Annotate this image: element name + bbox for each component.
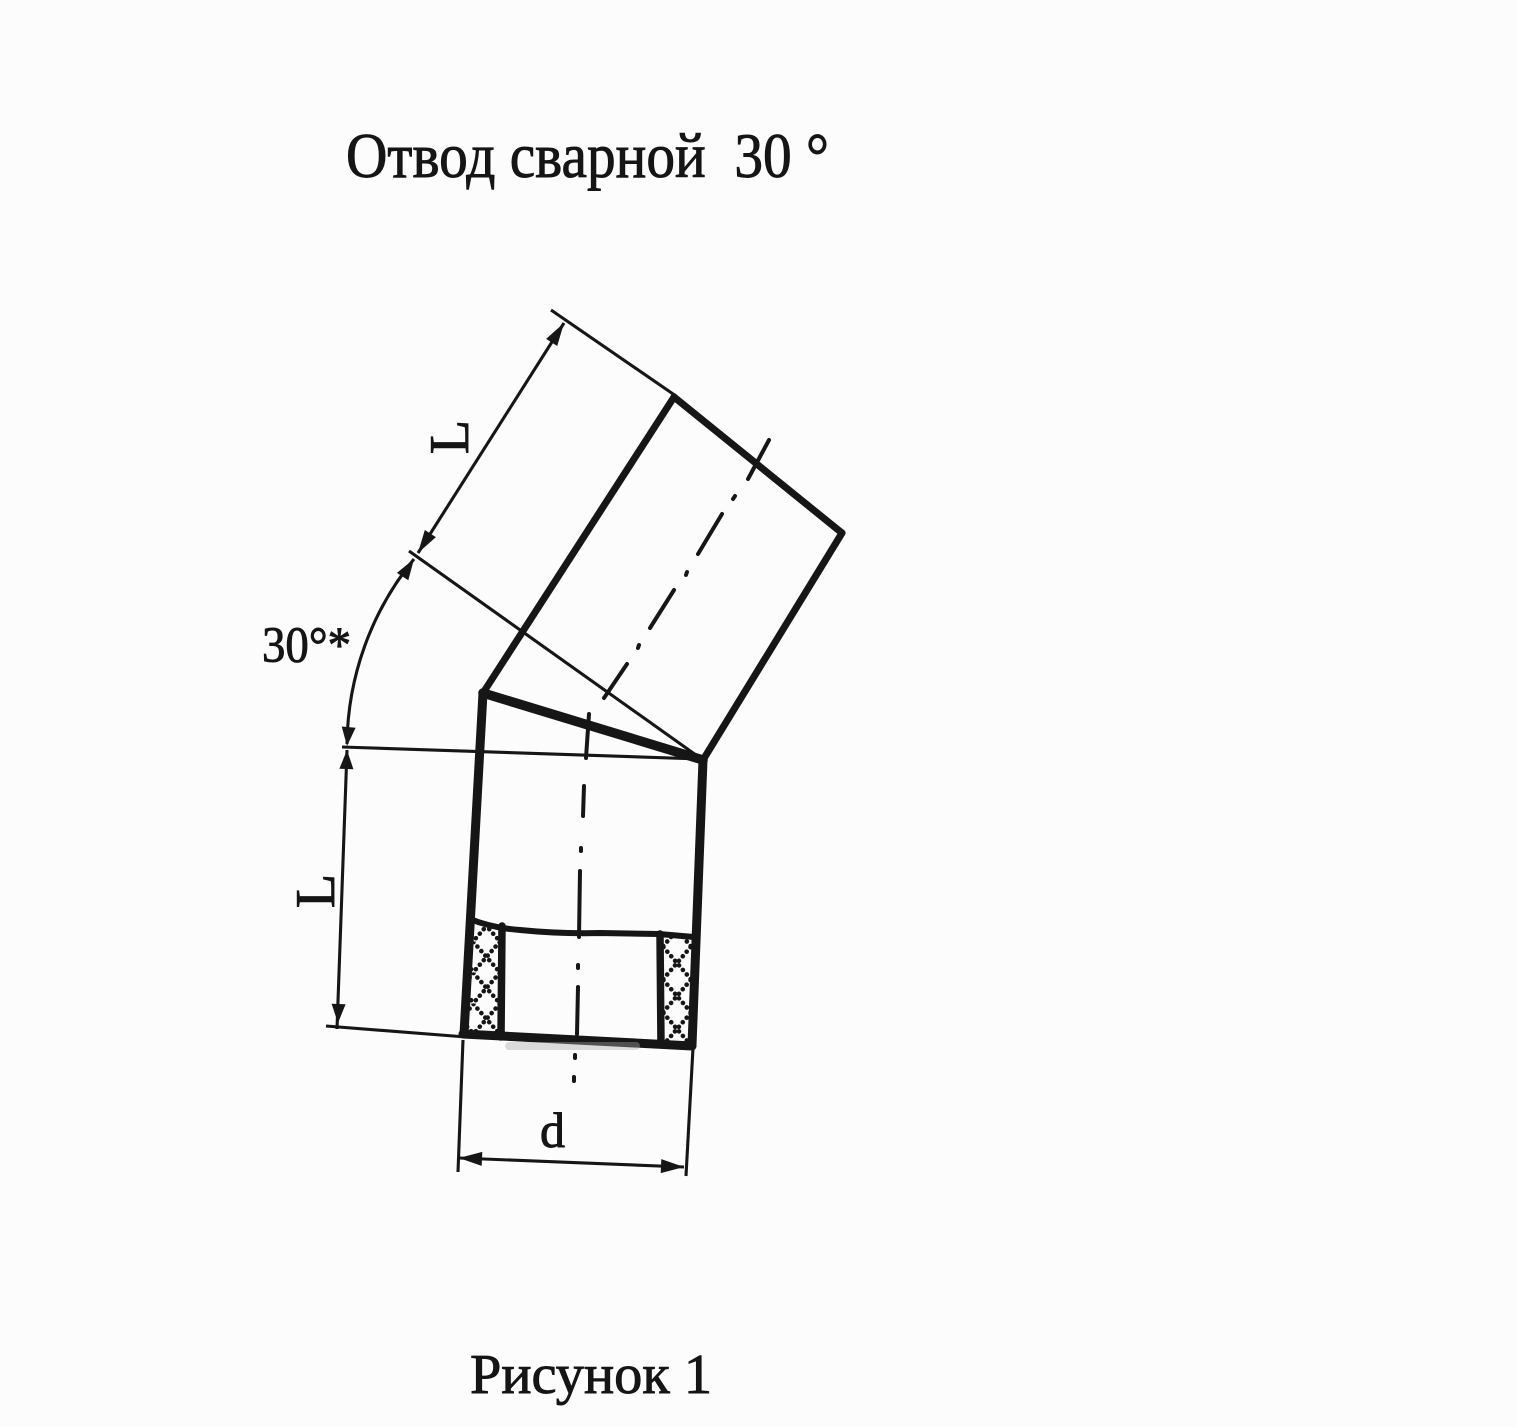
svg-text:Отвод сварной 30 °: Отвод сварной 30 °: [346, 121, 829, 191]
svg-text:L: L: [285, 874, 347, 908]
svg-text:L: L: [419, 420, 481, 454]
svg-text:30°*: 30°*: [262, 618, 351, 674]
svg-text:Рисунок 1: Рисунок 1: [470, 1344, 712, 1406]
svg-text:d: d: [540, 1102, 565, 1158]
